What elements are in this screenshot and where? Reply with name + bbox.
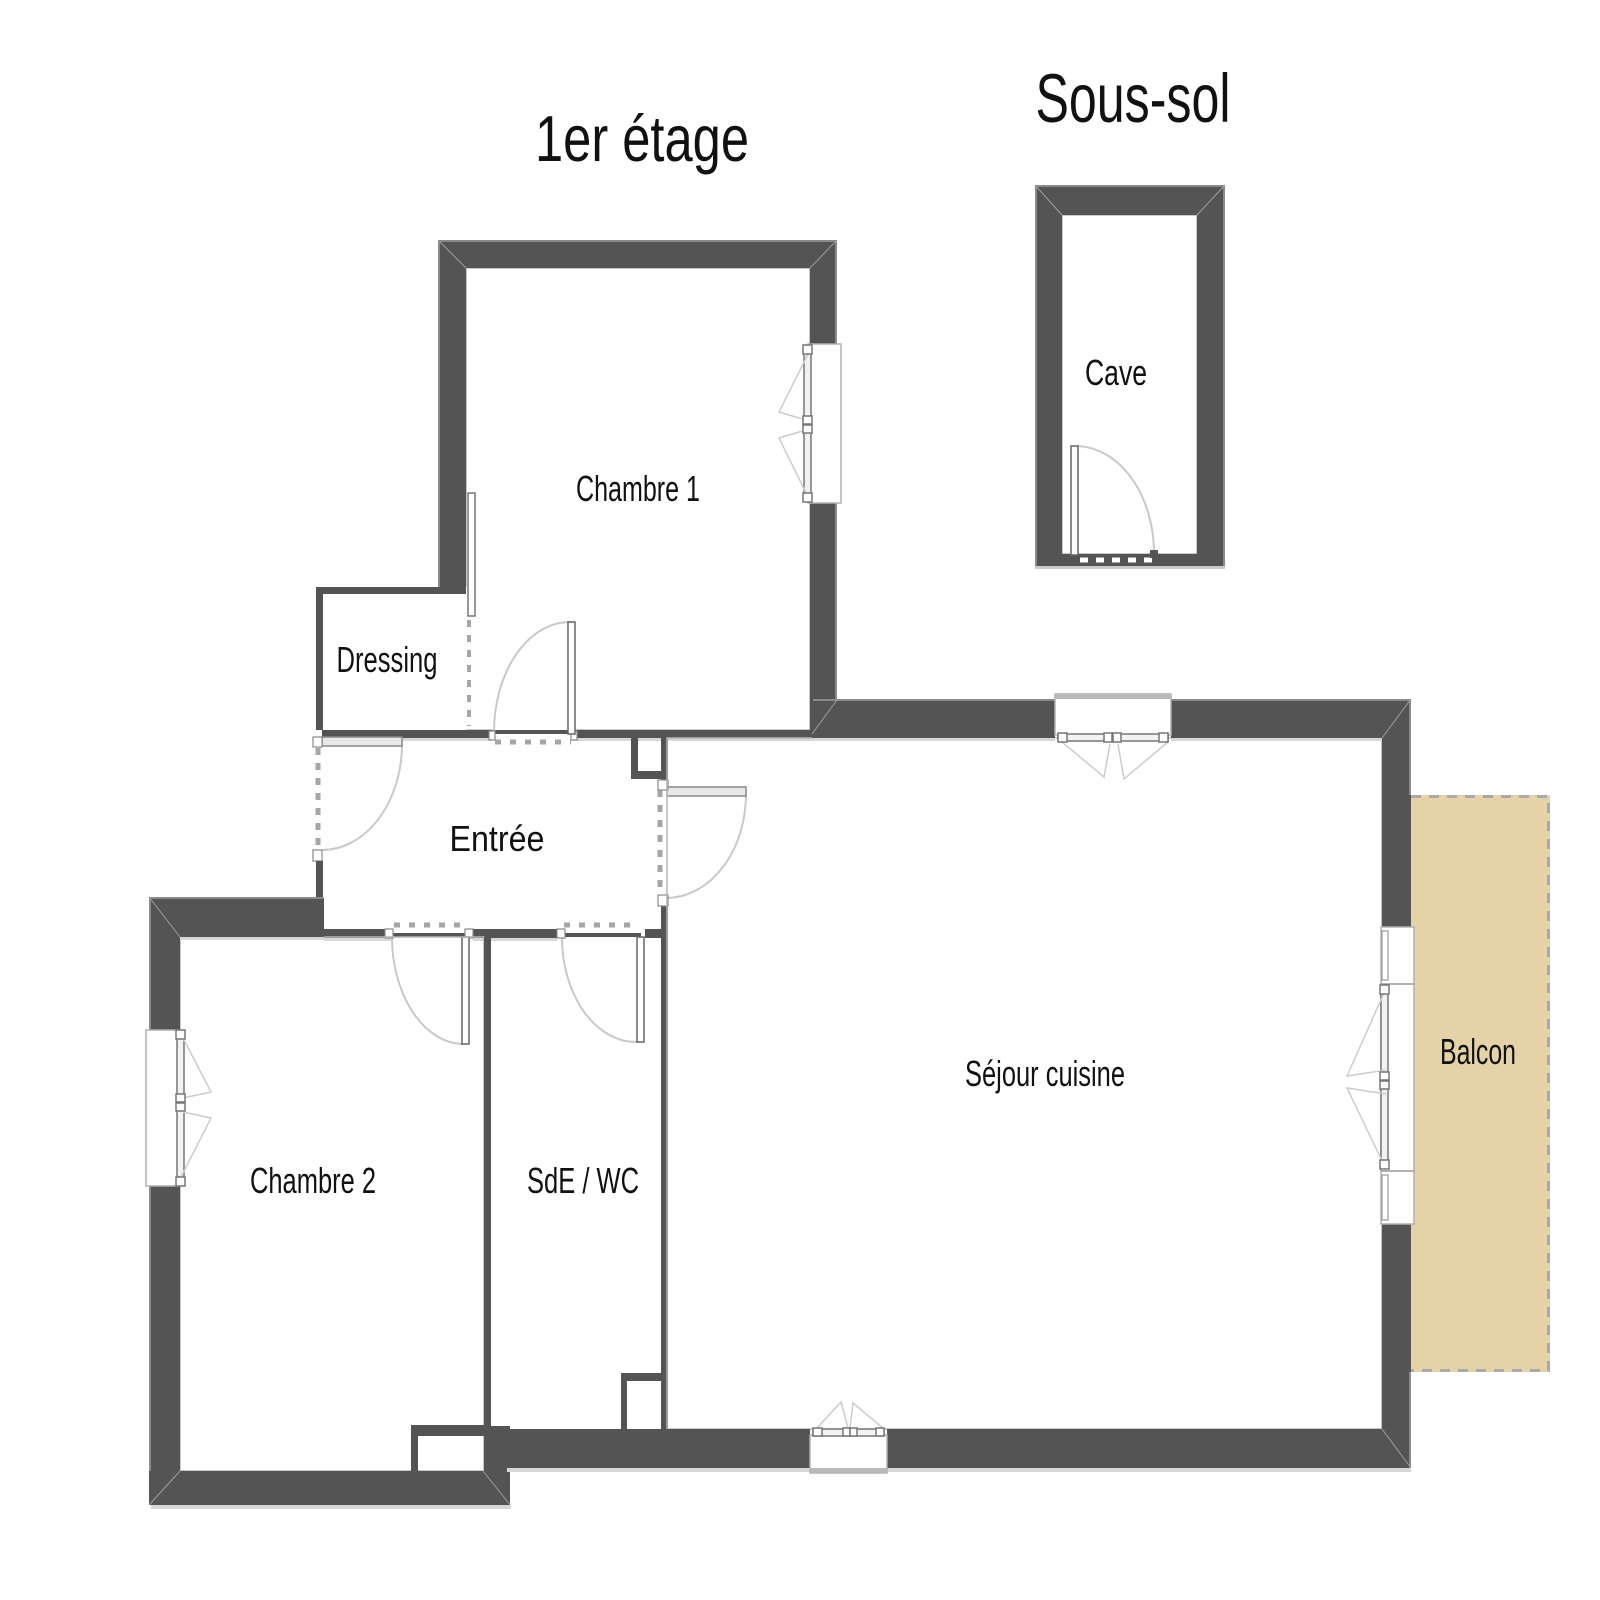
svg-text:Sous-sol: Sous-sol	[1036, 60, 1231, 137]
svg-text:Entrée: Entrée	[450, 818, 545, 859]
svg-text:Balcon: Balcon	[1440, 1031, 1516, 1072]
svg-text:Chambre 2: Chambre 2	[250, 1160, 376, 1201]
svg-text:1er étage: 1er étage	[535, 102, 749, 175]
svg-text:SdE / WC: SdE / WC	[527, 1160, 639, 1201]
svg-text:Cave: Cave	[1085, 352, 1147, 393]
svg-text:Chambre 1: Chambre 1	[576, 468, 700, 509]
svg-text:Séjour cuisine: Séjour cuisine	[965, 1053, 1125, 1094]
svg-text:Dressing: Dressing	[337, 639, 438, 680]
